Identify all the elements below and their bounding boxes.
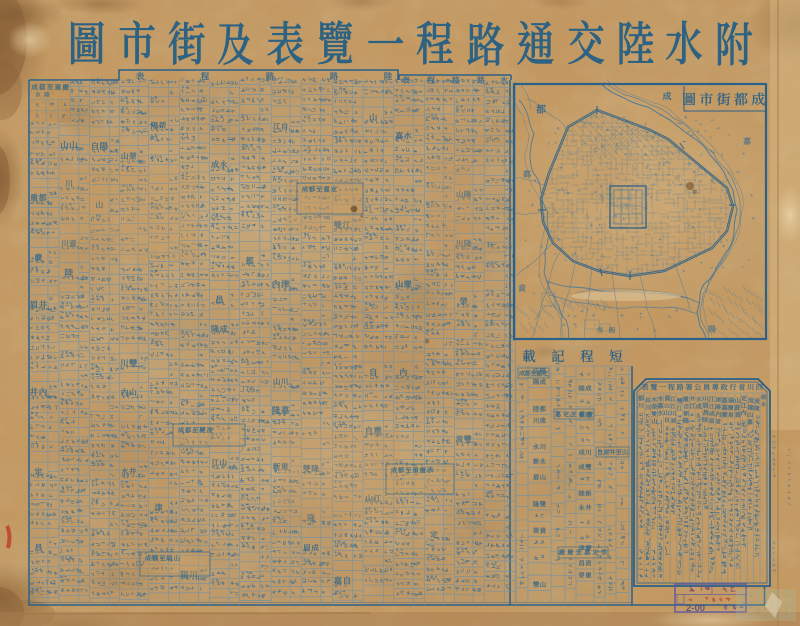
- svg-text:2-00: 2-00: [686, 603, 705, 614]
